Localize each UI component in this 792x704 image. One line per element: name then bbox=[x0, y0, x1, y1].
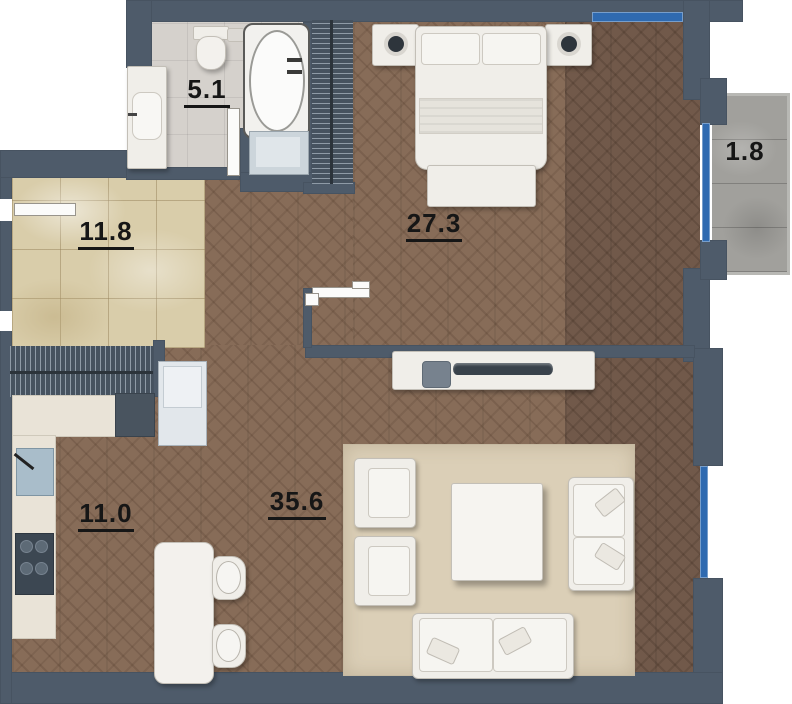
kitchen-sink bbox=[16, 448, 54, 496]
wall-right-living-lower bbox=[693, 578, 723, 675]
armchair-top-seat bbox=[368, 468, 410, 518]
bathroom-faucet-icon bbox=[128, 113, 137, 116]
wall-right-living-upper bbox=[693, 348, 723, 466]
bed-bench bbox=[427, 165, 536, 207]
dining-chair-bottom-seat bbox=[216, 629, 241, 662]
balcony-area-label: 1.8 bbox=[722, 138, 768, 170]
burner-icon-1 bbox=[20, 540, 33, 553]
floor-plan: 5.1 11.8 27.3 1.8 11.0 35.6 bbox=[0, 0, 792, 704]
tv-icon bbox=[453, 363, 553, 375]
bathroom-sink bbox=[132, 92, 162, 140]
wall-bathroom-left bbox=[126, 0, 152, 68]
coffee-table bbox=[451, 483, 543, 581]
bedroom-door-handle-icon bbox=[352, 281, 370, 289]
living-room-area-label: 35.6 bbox=[268, 488, 326, 520]
toilet-bowl bbox=[196, 36, 226, 70]
kitchen-counter-top-run bbox=[12, 395, 117, 437]
bathtub-basin bbox=[249, 30, 305, 132]
bed-pillow-right bbox=[482, 33, 541, 65]
burner-icon-3 bbox=[20, 562, 33, 575]
hallway-wardrobe bbox=[10, 346, 153, 397]
bed-pillow-left bbox=[421, 33, 480, 65]
burner-icon-2 bbox=[35, 540, 48, 553]
bedroom-area-label: 27.3 bbox=[406, 210, 462, 242]
washing-machine-lid bbox=[256, 137, 300, 167]
entry-door-opening bbox=[0, 199, 12, 221]
hallway-area-label: 11.8 bbox=[78, 218, 134, 250]
wall-balcony-stub-top bbox=[700, 78, 727, 125]
bedroom-top-window bbox=[592, 12, 683, 22]
dining-chair-top-seat bbox=[216, 561, 241, 594]
bedroom-door-track-icon bbox=[305, 293, 319, 306]
bedroom-wardrobe bbox=[312, 20, 353, 184]
bathtub-faucet-icon bbox=[287, 58, 302, 62]
hallway-floor bbox=[12, 176, 205, 348]
kitchen-oven bbox=[115, 393, 155, 437]
bedroom-floor-dark-strip bbox=[565, 20, 700, 348]
living-room-window bbox=[700, 466, 708, 578]
lamp-left-icon bbox=[384, 32, 408, 56]
speaker-icon bbox=[422, 361, 451, 388]
left-wall-opening bbox=[0, 311, 12, 331]
kitchen-area-label: 11.0 bbox=[78, 500, 134, 532]
fridge-door-line bbox=[163, 366, 202, 408]
corridor-floor bbox=[203, 176, 353, 348]
wall-left bbox=[0, 150, 12, 704]
dining-table bbox=[154, 542, 214, 684]
entry-door bbox=[14, 203, 76, 216]
wall-bottom bbox=[0, 672, 723, 704]
bathroom-area-label: 5.1 bbox=[184, 76, 230, 108]
wall-balcony-stub-bottom bbox=[700, 240, 727, 280]
lamp-right-icon bbox=[557, 32, 581, 56]
balcony-window bbox=[702, 123, 710, 242]
bathroom-door bbox=[227, 108, 240, 176]
bathtub-handle-icon bbox=[287, 70, 302, 74]
burner-icon-4 bbox=[35, 562, 48, 575]
bed-blanket-fold bbox=[419, 98, 543, 134]
armchair-bottom-seat bbox=[368, 546, 410, 596]
